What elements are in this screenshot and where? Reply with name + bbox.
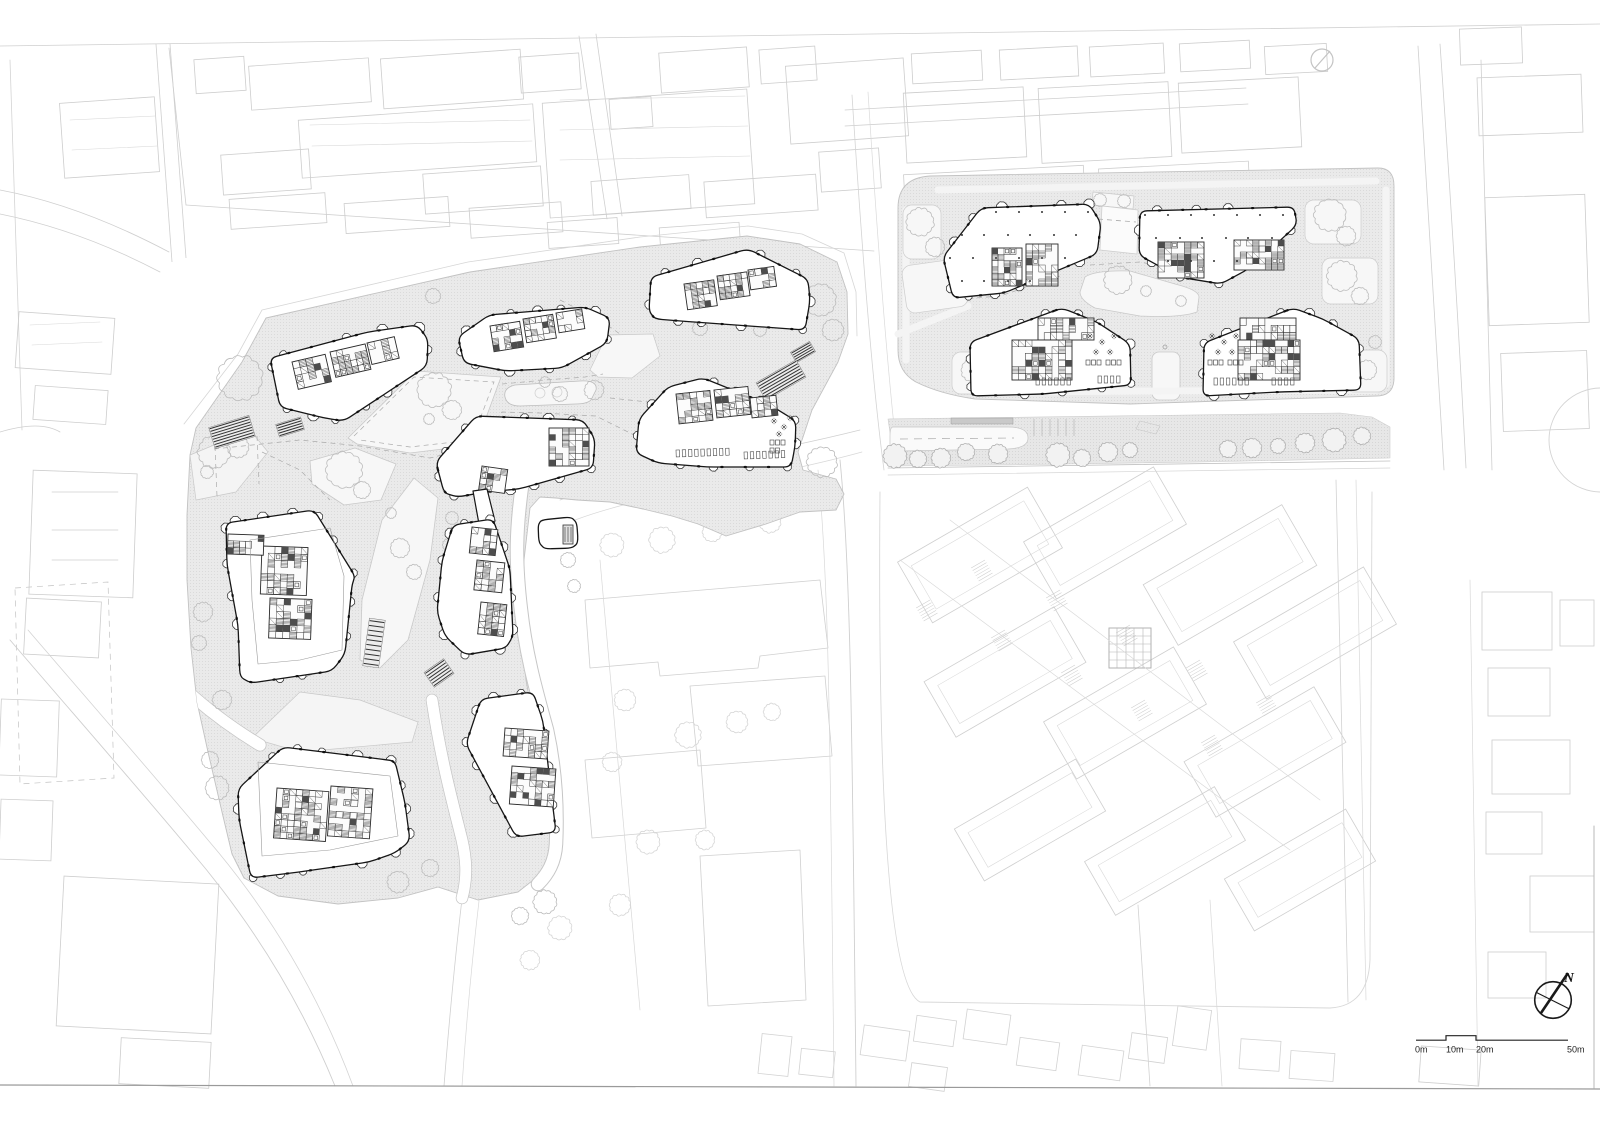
svg-text:20m: 20m	[1476, 1045, 1494, 1055]
svg-text:N: N	[1563, 970, 1575, 985]
svg-text:50m: 50m	[1567, 1045, 1585, 1055]
svg-text:0m: 0m	[1415, 1045, 1428, 1055]
svg-text:10m: 10m	[1446, 1045, 1464, 1055]
